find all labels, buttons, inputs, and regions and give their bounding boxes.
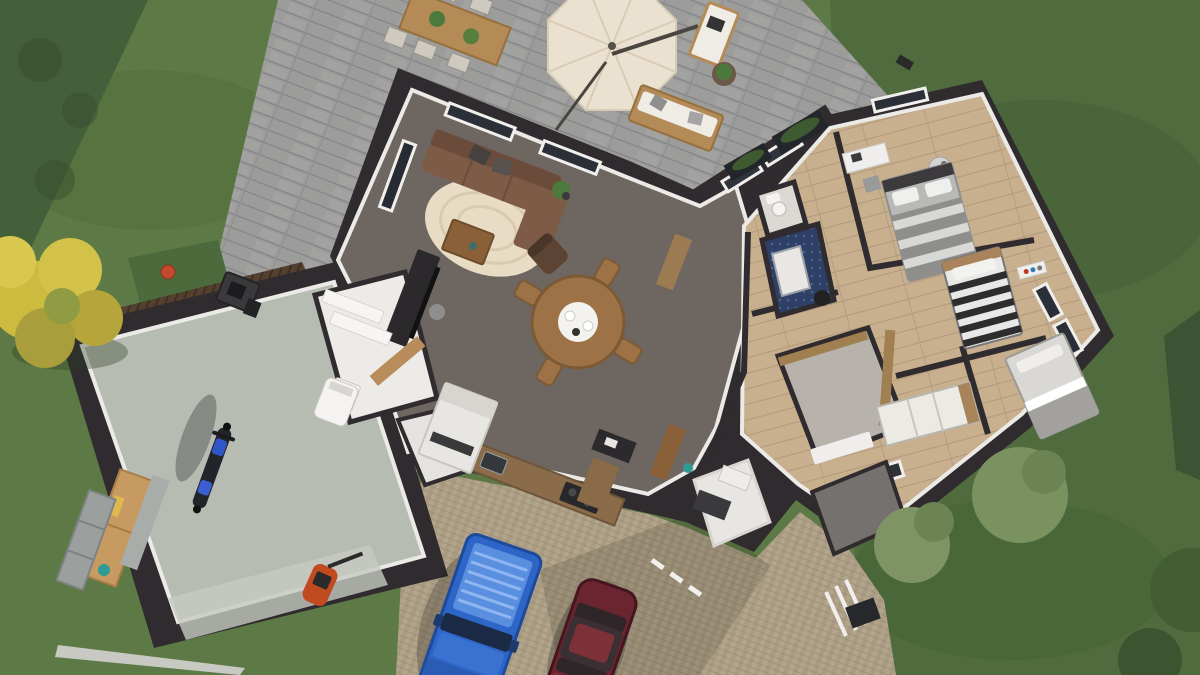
hedge-texture bbox=[62, 92, 98, 128]
teal-stool bbox=[98, 564, 110, 576]
desk-chair bbox=[429, 304, 445, 320]
teal-basket bbox=[683, 463, 693, 473]
tree-foliage bbox=[44, 288, 80, 324]
red-ball bbox=[161, 265, 175, 279]
hedge-texture bbox=[18, 38, 62, 82]
vanity-bowl bbox=[814, 290, 830, 306]
table-item bbox=[572, 328, 580, 336]
plate bbox=[565, 311, 575, 321]
bush-shade bbox=[914, 502, 954, 542]
bush-shade bbox=[1022, 450, 1066, 494]
plate bbox=[583, 321, 593, 331]
plant-pot bbox=[562, 192, 570, 200]
hedge-texture bbox=[35, 160, 75, 200]
pot-plant bbox=[716, 64, 732, 80]
table-runner bbox=[558, 302, 598, 342]
floorplan-render bbox=[0, 0, 1200, 675]
